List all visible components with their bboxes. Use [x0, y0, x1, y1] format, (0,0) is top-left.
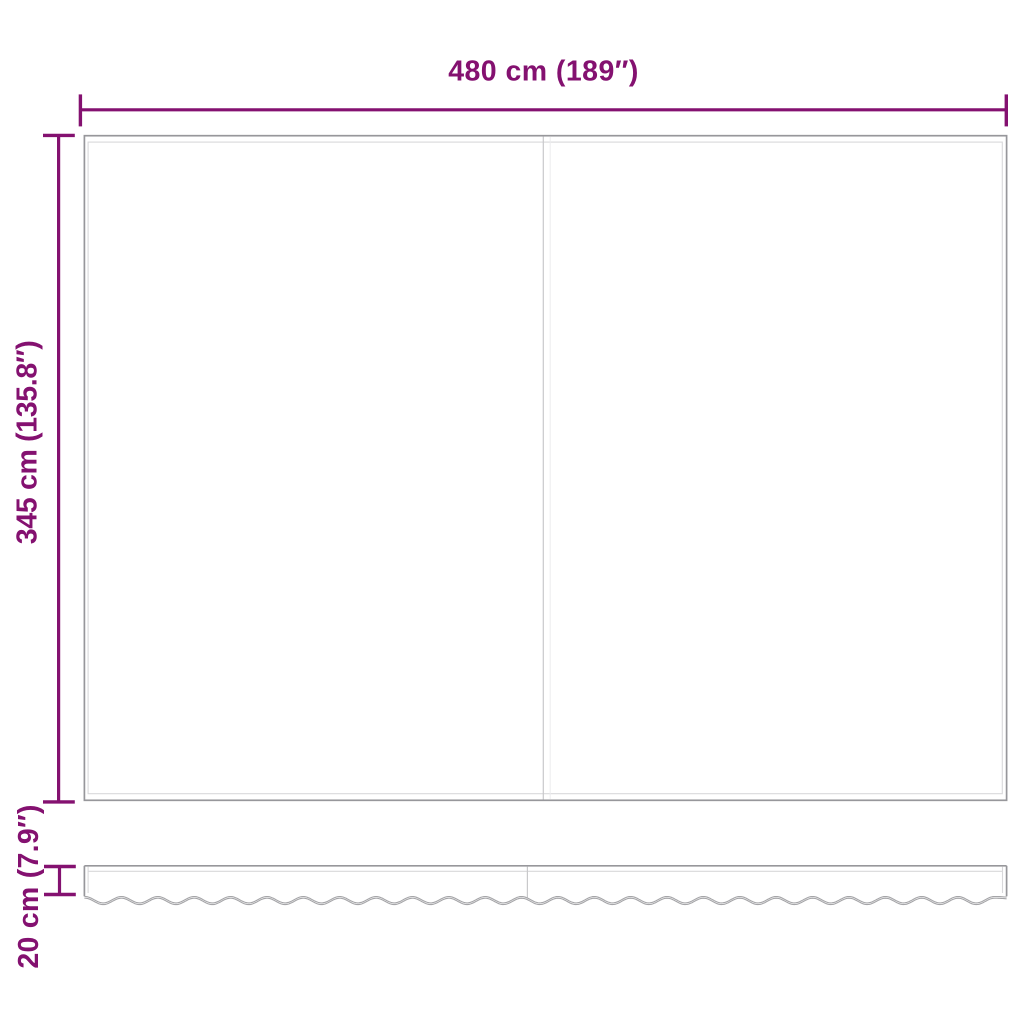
- svg-text:480 cm (189″): 480 cm (189″): [448, 55, 639, 87]
- svg-text:345 cm (135.8″): 345 cm (135.8″): [12, 341, 44, 545]
- svg-text:20 cm (7.9″): 20 cm (7.9″): [13, 804, 45, 968]
